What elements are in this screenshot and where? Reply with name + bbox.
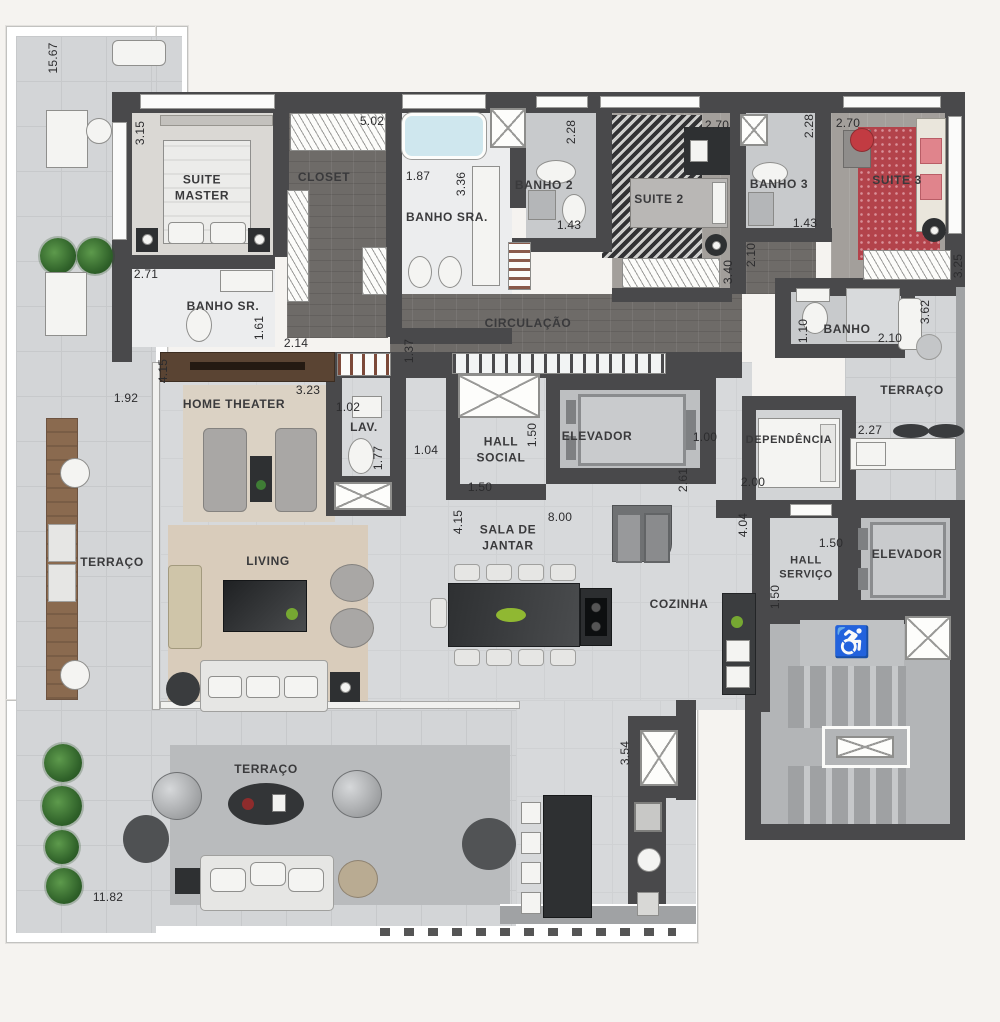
room-label-suite-2: SUITE 2 [634,192,684,208]
terrace-edge [956,287,965,515]
plant [46,868,82,904]
dim-terr-1-92: 1.92 [114,391,138,405]
room-label-closet: CLOSET [298,170,350,186]
living-terrace-glass [152,362,160,710]
dim-dep-2-00: 2.00 [741,475,765,489]
wall [746,228,832,242]
side-table [175,868,201,894]
room-label-hall-social: HALL SOCIAL [477,434,526,465]
chair [550,649,576,666]
room-label-elevador-social: ELEVADOR [562,429,633,445]
suite3-wardrobe [863,250,951,280]
dim-b3-2-28: 2.28 [802,114,816,138]
wall [546,390,560,470]
side-table [250,456,272,502]
plant [77,238,113,274]
window [536,96,588,108]
recliner [275,428,317,512]
sofa-cushion [288,868,324,892]
washer [928,424,964,438]
dim-bsra-1-87: 1.87 [406,169,430,183]
room-label-living: LIVING [246,554,290,570]
wall [745,824,965,840]
hall-cabinet [337,353,391,376]
oven-column [644,513,670,563]
plant [42,786,82,826]
speaker-cone [254,234,265,245]
dim-bsra-3-36: 3.36 [454,172,468,196]
room-label-banho-dep: BANHO [824,322,871,338]
refrigerator [616,513,642,563]
wall [596,105,612,245]
pouf [123,815,169,863]
pouf [166,672,200,706]
wall [742,396,756,506]
bar-counter [543,795,592,918]
laundry-tub [856,442,886,466]
dim-s3-2-70: 2.70 [836,116,860,130]
pillow [168,222,204,244]
pillow [210,222,246,244]
bench-cushion [48,524,76,562]
room-label-suite-3: SUITE 3 [872,173,922,189]
speaker-cone [930,226,939,235]
window [402,94,486,109]
chair [430,598,447,628]
wall [546,468,716,484]
toilet [408,256,432,288]
cooktop [585,598,607,636]
wall [815,105,831,235]
dim-hs-1-50-v: 1.50 [525,423,539,447]
room-label-circulacao: CIRCULAÇÃO [485,316,572,332]
plant-small [256,480,266,490]
dim-terraco-15-67: 15.67 [46,42,60,73]
coffee-table [223,580,307,632]
bidet [438,256,462,288]
headboard-shelf [160,115,273,126]
vanity-sink [472,166,500,286]
stair-void [836,736,894,758]
dim-lav-1-77: 1.77 [371,446,385,470]
chair [550,564,576,581]
vent-strip [380,928,676,936]
dim-ht-4-15: 4.15 [156,359,170,383]
dim-sala-4-15: 4.15 [451,510,465,534]
elevator-rail [858,568,868,590]
lounge-sofa [46,110,88,168]
stairs [788,666,906,728]
plant-small [731,616,743,628]
room-label-hall-servico: HALL SERVIÇO [779,554,833,583]
room-label-banho-sr: BANHO SR. [187,299,260,315]
room-label-elevador-servico: ELEVADOR [872,547,943,563]
room-label-banho-2: BANHO 2 [515,178,573,194]
wall [775,344,905,358]
room-label-home-theater: HOME THEATER [183,397,285,413]
window [843,96,941,108]
table-decor [242,798,254,810]
wall [950,502,965,840]
wall [742,396,842,410]
round-chair [338,860,378,898]
shaft [334,482,392,510]
room-label-lav: LAV. [350,420,378,436]
microwave [634,802,662,832]
speaker-cone [340,682,351,693]
room-label-terraco-inferior: TERRAÇO [234,762,298,778]
dim-bd-2-10: 2.10 [878,331,902,345]
dim-dep-2-61: 2.61 [676,468,690,492]
oval-table [228,783,304,825]
kitchen-sink [726,666,750,688]
sofa-cushion [208,676,242,698]
round-table [60,458,90,488]
chair [454,564,480,581]
window [112,122,127,240]
dim-s2-2-70: 2.70 [705,118,729,132]
dim-sala-8-00: 8.00 [548,510,572,524]
metal-chair [152,772,202,820]
shower [748,192,774,226]
tv [190,362,305,370]
armchair [330,608,374,648]
vanity-sink [220,270,273,292]
shaft [490,108,526,148]
pillow [920,174,942,200]
sofa-cushion [284,676,318,698]
speaker-cone [712,241,721,250]
dim-ts-2-27: 2.27 [858,423,882,437]
plant-small [286,608,298,620]
sofa-cushion [250,862,286,886]
dim-coz-3-54: 3.54 [618,741,632,765]
speaker-cone [142,234,153,245]
wall [676,700,696,800]
window [948,116,962,234]
wall [546,372,716,390]
kitchen-sink [726,640,750,662]
stool [521,832,541,854]
duct [640,730,678,786]
room-label-cozinha: COZINHA [650,597,709,613]
room-label-terraco-lateral: TERRAÇO [80,555,144,571]
sofa-cushion [210,868,246,892]
dim-hserv-1-50-v: 1.50 [768,585,782,609]
room-label-suite-master: SUITE MASTER [175,172,229,203]
dim-hall-1-04: 1.04 [414,443,438,457]
sink [796,288,830,302]
centerpiece [496,608,526,622]
metal-chair [332,770,382,818]
shower [528,190,556,220]
plant [40,238,76,274]
desk-chair [690,140,708,162]
pillow [920,138,942,164]
dim-lav-1-02: 1.02 [336,400,360,414]
chair [486,564,512,581]
sofa-cushion [246,676,280,698]
plant [44,744,82,782]
closet-wardrobe [362,247,387,295]
wall [326,378,342,492]
door [790,504,832,516]
dim-b2-1-43: 1.43 [557,218,581,232]
daybed [112,40,166,66]
room-label-banho-sra: BANHO SRA. [406,210,488,226]
wall [612,288,732,302]
dim-ht-3-23: 3.23 [296,383,320,397]
shaft [740,114,768,146]
window [600,96,700,108]
dim-hserv-1-50-h: 1.50 [819,536,843,550]
plant [45,830,79,864]
chair [486,649,512,666]
wall [390,378,406,492]
shelf-unit [508,242,531,290]
round-sink [637,848,661,872]
dim-bd-1-10: 1.10 [796,319,810,343]
dim-s2-3-40: 3.40 [721,260,735,284]
bathtub [402,113,486,159]
washer [893,424,929,438]
armchair [330,564,374,602]
window [140,94,275,109]
side-table [916,334,942,360]
lounge-sofa [45,272,87,336]
pouf [462,818,516,870]
dim-s3-3-25: 3.25 [951,254,965,278]
round-table [60,660,90,690]
elevator-rail [566,400,576,424]
chair [454,649,480,666]
chair [518,564,544,581]
appliance [637,892,659,916]
dim-b2-2-28: 2.28 [564,120,578,144]
dim-hs-1-50-h: 1.50 [468,480,492,494]
bench-cushion [48,564,76,602]
dim-hall23-2-10: 2.10 [744,243,758,267]
suite2-wardrobe [622,258,720,288]
accessibility-icon: ♿ [833,628,870,658]
room-label-terraco-servico: TERRAÇO [880,383,944,399]
dim-ts-3-62: 3.62 [918,300,932,324]
wall [386,105,402,337]
chaise [168,565,202,649]
stool [521,862,541,884]
stairs [788,766,906,824]
dim-b3-1-43: 1.43 [793,216,817,230]
dim-bsr-2-14: 2.14 [284,336,308,350]
armchair [850,128,874,152]
recliner [203,428,247,512]
wall [775,278,791,348]
wall [446,484,546,500]
dim-sm-2-71: 2.71 [134,267,158,281]
dim-closet-5-02: 5.02 [360,114,384,128]
stool [521,892,541,914]
dim-sm-3-15: 3.15 [133,121,147,145]
elevator-rail [858,528,868,550]
dim-dep-1-00: 1.00 [693,430,717,444]
shaft [905,616,951,660]
pillow [712,182,726,224]
room-label-sala-jantar: SALA DE JANTAR [480,522,536,553]
dim-bsr-1-61: 1.61 [252,316,266,340]
dim-circ-1-37: 1.37 [402,339,416,363]
side-table [86,118,112,144]
floor-plan: ♿ SUITE MASTER CLOSET BANHO SRA. BANHO 2… [0,0,1000,1022]
stool [521,802,541,824]
room-label-banho-3: BANHO 3 [750,177,808,193]
dim-terr-11-82: 11.82 [93,890,123,904]
coat-closet [452,353,666,374]
room-label-dependencia: DEPENDÊNCIA [746,433,833,447]
dim-coz-4-04: 4.04 [736,513,750,537]
closet-wardrobe [287,190,309,302]
chair [518,649,544,666]
shaft [458,374,540,418]
table-decor [272,794,286,812]
